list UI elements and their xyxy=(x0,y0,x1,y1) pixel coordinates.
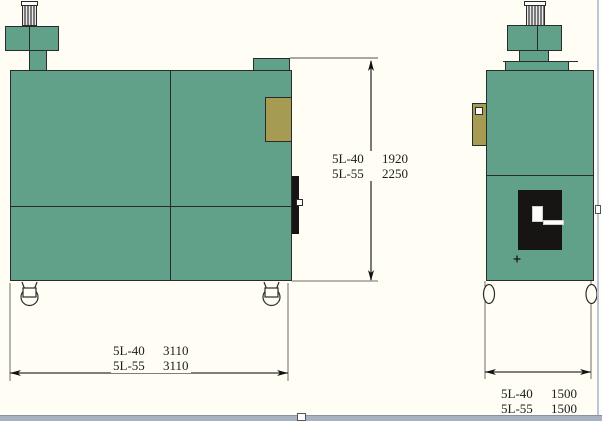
side-gearbox-divider xyxy=(29,27,30,50)
width-dimension-line xyxy=(485,281,591,379)
side-body xyxy=(10,70,292,281)
dimension-row: 5L-40 3110 xyxy=(113,343,189,358)
height-dimension-label: 5L-40 1920 5L-55 2250 xyxy=(330,151,410,181)
side-olive-panel xyxy=(265,97,292,142)
model-name: 5L-40 xyxy=(501,386,551,401)
window-right-resize-handle[interactable] xyxy=(595,205,601,214)
end-panel-window xyxy=(475,107,483,115)
dimension-value: 1500 xyxy=(551,401,577,416)
dimension-row: 5L-55 2250 xyxy=(332,166,408,181)
end-body-horizontal-seam xyxy=(487,175,593,176)
dimension-value: 2250 xyxy=(382,166,408,181)
drawing-canvas: 5L-40 1920 5L-55 2250 5L-40 3110 5L-55 3… xyxy=(0,0,602,421)
side-body-horizontal-seam xyxy=(11,206,291,207)
dimension-value: 3110 xyxy=(163,343,189,358)
end-gearbox xyxy=(507,25,562,51)
dimension-row: 5L-55 3110 xyxy=(113,358,189,373)
side-body-vertical-seam xyxy=(170,71,171,280)
end-door-latch-bar xyxy=(543,220,564,225)
side-motor-stem xyxy=(29,50,47,72)
width-dimension-label: 5L-40 1500 5L-55 1500 xyxy=(499,386,579,416)
dimension-row: 5L-40 1500 xyxy=(501,386,577,401)
arrow-left-icon xyxy=(485,369,496,375)
arrow-right-icon xyxy=(277,370,288,376)
arrow-right-icon xyxy=(580,369,591,375)
model-name: 5L-40 xyxy=(332,151,382,166)
window-bottom-resize-handle[interactable] xyxy=(297,413,306,421)
end-caster-right xyxy=(586,285,597,304)
model-name: 5L-55 xyxy=(501,401,551,416)
dimension-row: 5L-55 1500 xyxy=(501,401,577,416)
arrow-up-icon xyxy=(368,60,374,71)
arrow-down-icon xyxy=(368,270,374,281)
side-fitting-knob xyxy=(296,199,303,206)
end-gearbox-divider xyxy=(537,26,538,50)
dimension-row: 5L-40 1920 xyxy=(332,151,408,166)
side-gearbox xyxy=(5,26,59,51)
length-dimension-label: 5L-40 3110 5L-55 3110 xyxy=(111,343,191,373)
model-name: 5L-55 xyxy=(332,166,382,181)
arrow-left-icon xyxy=(10,370,21,376)
model-name: 5L-40 xyxy=(113,343,163,358)
end-door-handle xyxy=(532,206,543,222)
dimension-value: 1920 xyxy=(382,151,408,166)
end-motor-fins-icon xyxy=(526,5,545,26)
side-caster-left xyxy=(21,282,38,306)
end-caster-left xyxy=(484,285,495,304)
side-motor-fins-icon xyxy=(22,5,37,26)
dimension-value: 3110 xyxy=(163,358,189,373)
side-caster-right xyxy=(263,282,280,306)
dimension-value: 1500 xyxy=(551,386,577,401)
model-name: 5L-55 xyxy=(113,358,163,373)
